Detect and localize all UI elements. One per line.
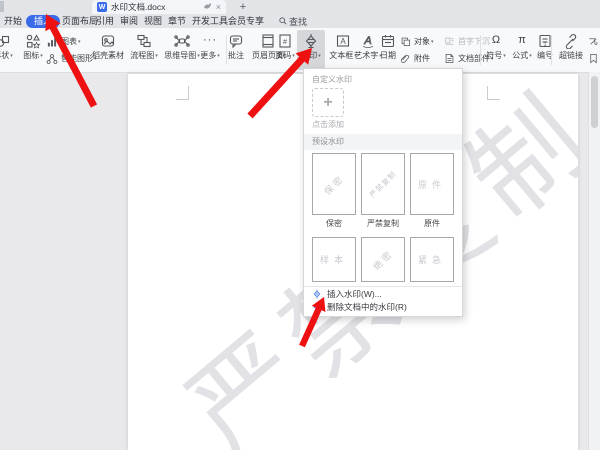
wps-doc-icon: W (97, 2, 107, 12)
bookmark-icon[interactable] (588, 51, 599, 66)
chevron-down-icon: ▾ (40, 53, 43, 59)
menu-tab-references[interactable]: 引用 (96, 14, 114, 28)
calendar-icon (376, 33, 400, 50)
ribbon-button-object[interactable]: 对象▾ (400, 34, 434, 49)
drop-cap-icon (444, 36, 455, 47)
preset-row-1: 保密 严禁复制 原件 (304, 150, 462, 215)
close-tab-icon[interactable]: × (216, 3, 221, 12)
preset-watermark-original[interactable]: 原件 (410, 153, 454, 215)
ribbon-button-page-number[interactable]: # 页码▾ (272, 30, 298, 70)
ribbon-button-icons[interactable]: 图标▾ (18, 30, 48, 70)
insert-watermark-icon (312, 289, 322, 299)
svg-text:1: 1 (544, 42, 547, 48)
chevron-down-icon: ▾ (10, 53, 13, 59)
svg-text:#: # (283, 39, 287, 46)
cross-reference-icon[interactable] (588, 34, 599, 49)
preset-watermark-no-copy[interactable]: 严禁复制 (361, 153, 405, 215)
ribbon-button-docer-assets[interactable]: 稻壳素材 (88, 30, 128, 70)
preset-watermark-header: 预设水印 (304, 134, 462, 150)
watermark-icon (297, 33, 325, 50)
document-title: 水印文档.docx (111, 1, 199, 13)
ribbon-button-flowchart[interactable]: 流程图▾ (126, 30, 162, 70)
margin-corner-mark-right (487, 86, 500, 100)
ribbon-button-symbol[interactable]: Ω 符号▾ (483, 30, 509, 70)
ribbon-group-object-attachment: 对象▾ 附件 (400, 30, 446, 70)
custom-watermark-header: 自定义水印 (304, 69, 462, 88)
ribbon-button-shapes[interactable]: 形状▾ (0, 30, 18, 70)
comment-icon (221, 33, 251, 50)
chevron-down-icon: ▾ (318, 53, 321, 59)
chevron-down-icon: ▾ (503, 53, 506, 59)
watermark-dropdown-panel: 自定义水印 + 点击添加 预设水印 保密 严禁复制 原件 保密 严禁复制 原件 … (303, 68, 463, 317)
ribbon-separator (480, 35, 481, 65)
menu-tab-start[interactable]: 开始 (4, 14, 22, 28)
omega-icon: Ω (483, 33, 509, 50)
preset-labels-row-1: 保密 严禁复制 原件 (304, 215, 462, 229)
icons-grid-icon (18, 33, 48, 50)
chevron-down-icon: ▾ (292, 53, 295, 59)
window-edge-fragment (0, 1, 4, 12)
document-tab[interactable]: W 水印文档.docx × (92, 0, 226, 14)
chevron-down-icon: ▾ (529, 53, 532, 59)
menu-tab-section[interactable]: 章节 (168, 14, 186, 28)
search-icon (279, 17, 287, 25)
delete-watermark-menu-item[interactable]: 删除文档中的水印(R) (304, 300, 462, 313)
paperclip-icon (400, 53, 411, 64)
scrollbar-thumb[interactable] (591, 76, 598, 128)
ribbon-button-attachment[interactable]: 附件 (400, 51, 430, 66)
hyperlink-icon (554, 33, 588, 50)
chevron-down-icon: ▾ (78, 39, 81, 45)
menu-tab-member[interactable]: 会员专享 (228, 14, 264, 28)
new-tab-button[interactable]: + (236, 1, 250, 13)
more-icon: ··· (196, 33, 224, 50)
preset-watermark-top-secret[interactable]: 绝密 (361, 237, 405, 282)
add-custom-watermark-label: 点击添加 (312, 120, 462, 129)
chevron-down-icon: ▾ (217, 53, 220, 59)
menu-bar: 开始 插入 页面布局 引用 审阅 视图 章节 开发工具 会员专享 查找 (0, 14, 600, 28)
shapes-icon (0, 33, 18, 50)
ribbon-button-watermark[interactable]: 水印▾ (297, 30, 325, 70)
ribbon-separator (551, 35, 552, 65)
search-control[interactable]: 查找 (279, 14, 307, 28)
pi-icon: π (509, 33, 535, 50)
dove-icon[interactable] (203, 2, 212, 13)
chevron-down-icon: ▾ (431, 39, 434, 45)
ribbon-button-comment[interactable]: 批注 (221, 30, 251, 70)
smart-graphics-icon (46, 53, 58, 65)
ribbon-button-chart[interactable]: 图表▾ (46, 34, 81, 49)
svg-text:A: A (363, 35, 371, 47)
ribbon-group-clipped (588, 30, 600, 70)
page-number-icon: # (272, 33, 298, 50)
chart-icon (46, 36, 58, 48)
preset-watermark-sample[interactable]: 样本 (312, 237, 356, 282)
wps-window: W 水印文档.docx × + 开始 插入 页面布局 引用 审阅 视图 章节 开… (0, 0, 600, 450)
menu-tab-dev-tools[interactable]: 开发工具 (192, 14, 228, 28)
ribbon-button-formula[interactable]: π 公式▾ (509, 30, 535, 70)
preset-watermark-confidential[interactable]: 保密 (312, 153, 356, 215)
docer-assets-icon (88, 33, 128, 50)
menu-tab-insert[interactable]: 插入 (26, 15, 60, 28)
ribbon-button-date[interactable]: 日期 (376, 30, 400, 70)
add-custom-watermark-tile[interactable]: + (312, 88, 344, 117)
flowchart-icon (126, 33, 162, 50)
ribbon-button-more[interactable]: ··· 更多▾ (196, 30, 224, 70)
svg-text:A: A (340, 37, 346, 46)
menu-tab-view[interactable]: 视图 (144, 14, 162, 28)
margin-corner-mark-left (176, 86, 189, 100)
document-parts-icon (444, 53, 455, 64)
search-label: 查找 (289, 15, 307, 28)
preset-watermark-urgent[interactable]: 紧急 (410, 237, 454, 282)
insert-watermark-menu-item[interactable]: 插入水印(W)... (304, 287, 462, 300)
ribbon-toolbar: 形状▾ 图标▾ 图表▾ 智能图形▾ 稻壳素材 流程图▾ 思维导 (0, 28, 600, 73)
chevron-down-icon: ▾ (155, 53, 158, 59)
preset-row-2: 样本 绝密 紧急 (304, 234, 462, 282)
vertical-scrollbar[interactable] (588, 72, 600, 450)
menu-tab-page-layout[interactable]: 页面布局 (62, 14, 98, 28)
delete-watermark-icon (312, 302, 322, 312)
object-icon (400, 36, 411, 47)
ribbon-button-hyperlink[interactable]: 超链接 (554, 30, 588, 70)
tab-bar: W 水印文档.docx × + (0, 0, 600, 14)
plus-icon: + (323, 95, 332, 111)
menu-tab-review[interactable]: 审阅 (120, 14, 138, 28)
